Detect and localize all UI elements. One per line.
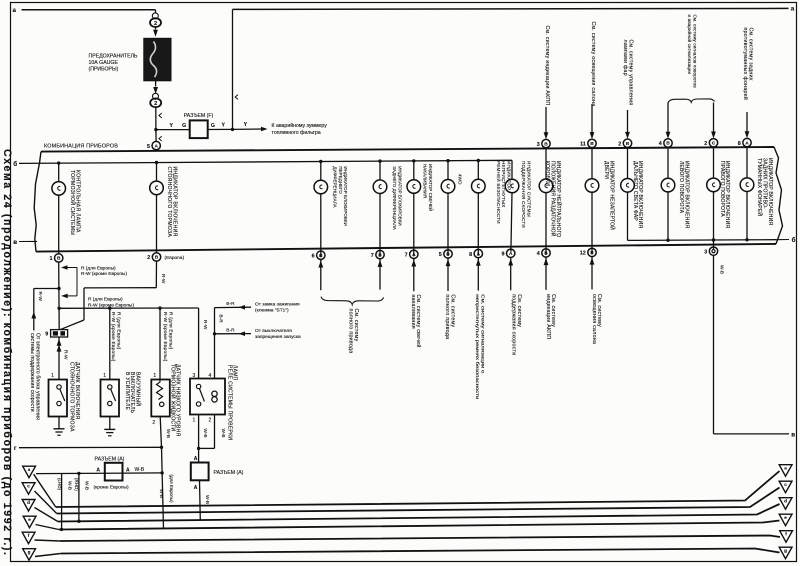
- svg-text:От выключателя: От выключателя: [255, 328, 292, 334]
- svg-text:ИНДИКАТОР ВКЛЮЧЕНИЯДАЛЬНЕГО СВ: ИНДИКАТОР ВКЛЮЧЕНИЯДАЛЬНЕГО СВЕТА ФАР: [632, 161, 643, 228]
- svg-text:1: 1: [193, 418, 196, 424]
- svg-text:4: 4: [537, 251, 540, 257]
- svg-text:2: 2: [154, 101, 157, 107]
- svg-text:4: 4: [209, 373, 212, 379]
- svg-text:g: g: [28, 549, 31, 554]
- svg-text:КОМБИНАЦИЯ ПРИБОРОВ: КОМБИНАЦИЯ ПРИБОРОВ: [44, 144, 118, 150]
- svg-text:R-W: R-W: [203, 320, 208, 330]
- svg-text:B: B: [378, 252, 382, 258]
- svg-text:B: B: [446, 252, 450, 258]
- svg-text:(кроме Европы): (кроме Европы): [94, 484, 129, 490]
- svg-text:топливного фильтра: топливного фильтра: [272, 130, 321, 136]
- svg-text:ИНДИКАТОР БЛОКИРОВКИЗАДНЕГО ДИ: ИНДИКАТОР БЛОКИРОВКИЗАДНЕГО ДИФФЕРЕНЦИАЛ…: [392, 166, 402, 230]
- svg-text:См. систему индикации АКПП: См. систему индикации АКПП: [544, 26, 550, 106]
- svg-text:A: A: [745, 140, 749, 146]
- svg-text:в: в: [13, 239, 17, 246]
- svg-text:(LHD): (LHD): [57, 478, 62, 491]
- svg-text:A: A: [194, 456, 198, 462]
- svg-text:2: 2: [154, 21, 157, 27]
- svg-text:R (для Европы): R (для Европы): [81, 265, 116, 271]
- svg-text:12: 12: [580, 251, 586, 257]
- svg-text:КОНТРОЛЬНАЯ ЛАМПАТОРМОЗНОЙ СИС: КОНТРОЛЬНАЯ ЛАМПАТОРМОЗНОЙ СИСТЕМЫ: [69, 170, 80, 235]
- svg-text:W-B: W-B: [720, 265, 725, 274]
- svg-text:A: A: [96, 468, 100, 474]
- svg-text:7: 7: [405, 252, 408, 258]
- svg-text:R (для Европы): R (для Европы): [88, 297, 123, 303]
- svg-text:г: г: [14, 445, 17, 452]
- svg-text:W-B: W-B: [205, 495, 210, 504]
- svg-text:W-B: W-B: [159, 489, 164, 498]
- svg-text:От замка зажигания: От замка зажигания: [255, 301, 300, 307]
- svg-text:(клемма "ST1"): (клемма "ST1"): [255, 307, 289, 313]
- svg-text:ДАТЧИК НИЗКОГО УРОВНЯТОРМОЗНОЙ: ДАТЧИК НИЗКОГО УРОВНЯТОРМОЗНОЙ ЖИДКОСТИ: [169, 364, 180, 437]
- svg-text:g: g: [784, 548, 787, 553]
- svg-text:d: d: [27, 500, 30, 505]
- svg-text:2: 2: [618, 141, 621, 147]
- svg-text:2: 2: [147, 255, 150, 261]
- svg-text:3: 3: [704, 249, 707, 255]
- svg-text:а: а: [28, 467, 31, 472]
- svg-text:10А GAUGE: 10А GAUGE: [89, 60, 119, 66]
- svg-text:W-B: W-B: [67, 481, 72, 490]
- svg-text:B: B: [626, 141, 630, 147]
- svg-text:B: B: [544, 141, 548, 147]
- svg-text:A: A: [509, 251, 513, 257]
- svg-text:Y: Y: [221, 122, 225, 128]
- svg-text:с: с: [784, 482, 787, 487]
- svg-text:запрещения запуска: запрещения запуска: [255, 335, 301, 340]
- svg-text:9: 9: [45, 331, 48, 337]
- svg-text:б: б: [792, 237, 796, 244]
- svg-text:B: B: [57, 256, 61, 262]
- svg-text:B: B: [590, 250, 594, 256]
- svg-text:9: 9: [502, 251, 505, 257]
- svg-text:A: A: [412, 252, 416, 258]
- svg-text:б: б: [13, 161, 17, 168]
- svg-text:A: A: [154, 143, 158, 149]
- svg-text:См. систему освещения салона: См. систему освещения салона: [590, 22, 596, 107]
- svg-text:4WD: 4WD: [458, 174, 463, 185]
- svg-text:3: 3: [193, 373, 196, 379]
- svg-text:2: 2: [704, 141, 707, 147]
- svg-text:1: 1: [153, 373, 156, 379]
- svg-text:B: B: [666, 141, 670, 147]
- svg-text:К аварийному зуммеру: К аварийному зуммеру: [272, 122, 328, 129]
- svg-text:W-B: W-B: [135, 467, 145, 473]
- svg-text:B-R: B-R: [219, 315, 224, 324]
- svg-text:R-W: R-W: [38, 292, 43, 302]
- svg-text:а: а: [784, 465, 787, 470]
- svg-text:W-B: W-B: [221, 429, 226, 438]
- svg-text:B: B: [544, 251, 548, 257]
- svg-text:е: е: [784, 515, 787, 520]
- svg-text:4: 4: [659, 141, 662, 147]
- svg-text:1: 1: [50, 256, 53, 262]
- svg-text:d: d: [784, 498, 787, 503]
- svg-text:B-R: B-R: [226, 301, 235, 307]
- svg-text:РАЗЪЕМ (А): РАЗЪЕМ (А): [214, 470, 244, 476]
- svg-text:Y: Y: [169, 123, 173, 129]
- svg-text:2: 2: [209, 418, 212, 424]
- svg-text:W-B: W-B: [203, 429, 208, 438]
- svg-text:A: A: [194, 485, 198, 491]
- svg-text:От электронного блока управлен: От электронного блока управлениясистемы …: [29, 333, 40, 420]
- svg-text:C: C: [712, 141, 716, 147]
- svg-text:B: B: [155, 255, 159, 261]
- svg-text:7: 7: [371, 253, 374, 259]
- svg-text:РАЗЪЕМ (А): РАЗЪЕМ (А): [95, 456, 125, 462]
- svg-text:6: 6: [312, 253, 315, 259]
- svg-text:Схема 24 (продолжение): комбин: Схема 24 (продолжение): комбинация прибо…: [1, 149, 13, 555]
- svg-text:РАЗЪЕМ (F): РАЗЪЕМ (F): [184, 113, 214, 119]
- svg-text:(RHD): (RHD): [74, 478, 79, 491]
- svg-text:РЕЛЕ СИСТЕМЫ ПРОВЕРКИ: РЕЛЕ СИСТЕМЫ ПРОВЕРКИ: [227, 365, 233, 440]
- svg-text:а: а: [791, 5, 795, 12]
- svg-text:A: A: [126, 468, 130, 474]
- svg-text:(Европа): (Европа): [165, 255, 185, 261]
- svg-text:8: 8: [738, 141, 741, 147]
- svg-text:R-W (кроме Европы): R-W (кроме Европы): [81, 271, 127, 277]
- svg-text:5: 5: [439, 252, 442, 258]
- svg-text:1: 1: [51, 373, 54, 379]
- svg-text:е: е: [28, 517, 31, 522]
- svg-text:W-B: W-B: [166, 429, 171, 438]
- svg-text:B-R: B-R: [226, 328, 235, 334]
- svg-text:ПРЕДОХРАНИТЕЛЬ: ПРЕДОХРАНИТЕЛЬ: [89, 54, 139, 60]
- svg-text:R-W: R-W: [64, 350, 69, 360]
- svg-text:8: 8: [469, 252, 472, 258]
- svg-text:(ПРИБОРЫ): (ПРИБОРЫ): [89, 67, 119, 73]
- svg-text:G: G: [182, 123, 186, 129]
- svg-text:в: в: [791, 431, 795, 438]
- svg-text:B: B: [590, 141, 594, 147]
- svg-text:11: 11: [580, 142, 586, 148]
- svg-text:2: 2: [152, 420, 155, 426]
- svg-text:а: а: [12, 7, 16, 14]
- svg-text:A: A: [477, 251, 481, 257]
- svg-text:Y: Y: [244, 122, 248, 128]
- svg-text:1: 1: [103, 373, 106, 379]
- svg-text:W-B: W-B: [85, 481, 90, 490]
- svg-text:5: 5: [147, 144, 150, 150]
- svg-text:(для Европы): (для Европы): [169, 475, 174, 504]
- svg-text:ИНДИКАТОР ВКЛЮЧЕНИЯСТОЯНОЧНОГО: ИНДИКАТОР ВКЛЮЧЕНИЯСТОЯНОЧНОГО ТОРМОЗА: [166, 167, 177, 238]
- svg-text:с: с: [27, 483, 30, 488]
- svg-text:R-W: R-W: [161, 274, 166, 284]
- svg-text:3: 3: [537, 142, 540, 148]
- svg-text:B: B: [319, 253, 323, 259]
- svg-text:G: G: [211, 123, 215, 129]
